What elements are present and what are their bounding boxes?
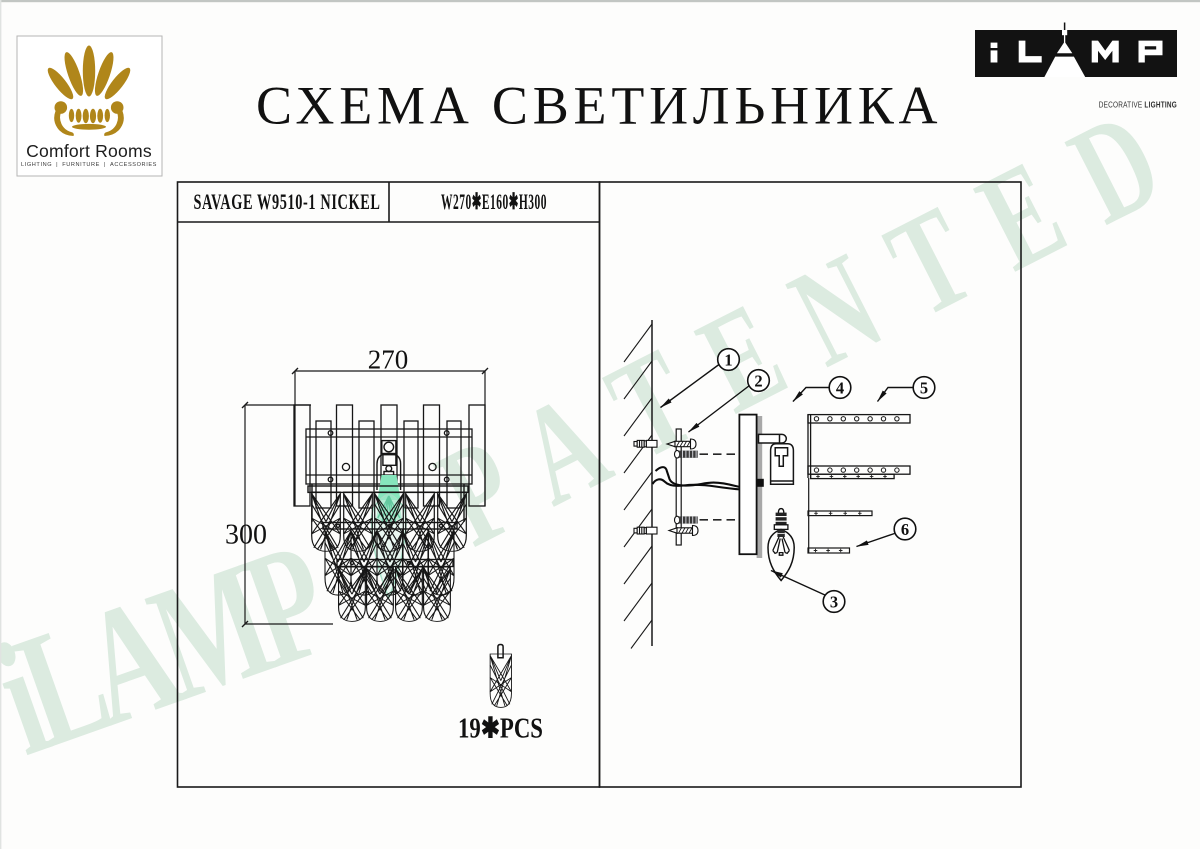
svg-text:6: 6 (901, 520, 909, 539)
svg-text:5: 5 (920, 378, 928, 397)
svg-text:19✱PCS: 19✱PCS (458, 712, 543, 744)
svg-text:4: 4 (836, 378, 844, 397)
svg-text:W270✱E160✱H300: W270✱E160✱H300 (441, 189, 547, 214)
svg-text:DECORATIVE LIGHTING: DECORATIVE LIGHTING (1099, 100, 1177, 110)
svg-text:Comfort Rooms: Comfort Rooms (26, 141, 152, 161)
svg-text:2: 2 (754, 371, 762, 390)
svg-text:1: 1 (724, 350, 732, 369)
svg-text:SAVAGE W9510-1 NICKEL: SAVAGE W9510-1 NICKEL (193, 190, 380, 215)
svg-text:LIGHTING | FURNITURE | ACC: LIGHTING | FURNITURE | ACCESSORIES (21, 162, 157, 168)
svg-text:300: 300 (225, 520, 267, 551)
svg-text:СХЕМА СВЕТИЛЬНИКА: СХЕМА СВЕТИЛЬНИКА (256, 76, 942, 136)
svg-text:3: 3 (830, 592, 838, 611)
svg-text:270: 270 (368, 345, 409, 375)
